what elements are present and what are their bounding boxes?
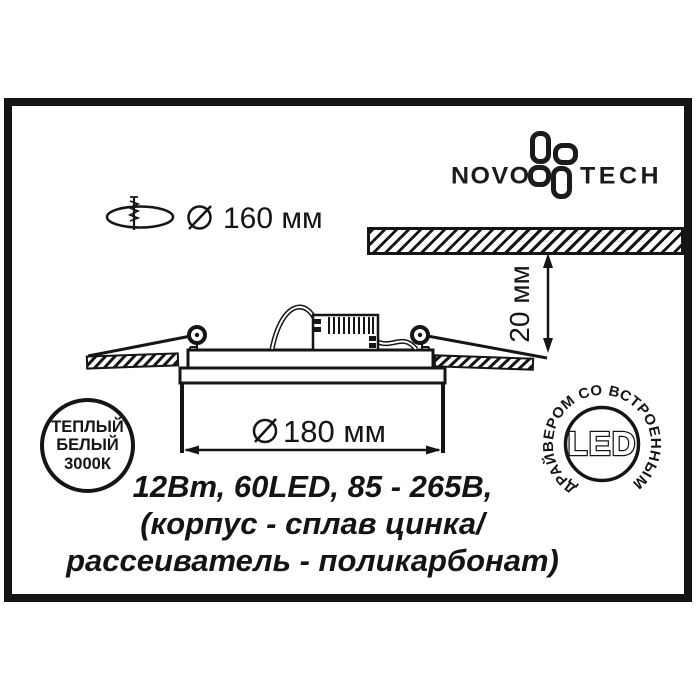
left-spring-arm (88, 335, 196, 356)
arrow-up-icon (543, 253, 553, 268)
body-diameter-label: 180 мм (283, 414, 386, 449)
specs-line-housing: (корпус - сплав цинка/ (60, 505, 565, 542)
specs-line-diffuser: рассеиватель - поликарбонат) (60, 542, 565, 579)
wire-left (272, 307, 316, 349)
warm-badge-line1: ТЕПЛЫЙ (51, 418, 124, 437)
left-spring-wing (87, 353, 178, 368)
led-badge-center-label: LED (568, 425, 637, 462)
fixture-top-plate (188, 350, 433, 368)
body-diameter-dimension: 180 мм (184, 414, 441, 455)
specs-text: 12Вт, 60LED, 85 - 265В, (корпус - сплав … (60, 468, 565, 579)
hole-diameter-label: 160 мм (223, 202, 323, 235)
warm-badge-line2: БЕЛЫЙ (56, 436, 118, 455)
diameter-symbol-icon (189, 206, 212, 229)
left-pivot-icon (189, 327, 205, 343)
diameter-symbol-icon (254, 419, 276, 442)
fixture-flange (180, 368, 445, 383)
diagram-canvas: NOVO TECH 160 мм 20 мм (0, 0, 700, 700)
fixture-cross-section: 180 мм (60, 290, 560, 475)
mounting-hole-diameter-group: 160 мм (95, 192, 325, 244)
right-spring-wing (435, 355, 533, 369)
wire-right (376, 341, 416, 349)
mounting-hole-icon (107, 197, 173, 230)
novotech-wordmark-left: NOVO (451, 163, 531, 191)
novotech-wordmark-right: TECH (580, 163, 662, 191)
specs-line-power: 12Вт, 60LED, 85 - 265В, (60, 468, 565, 505)
right-pivot-icon (412, 327, 428, 343)
novotech-flower-icon (527, 130, 579, 200)
